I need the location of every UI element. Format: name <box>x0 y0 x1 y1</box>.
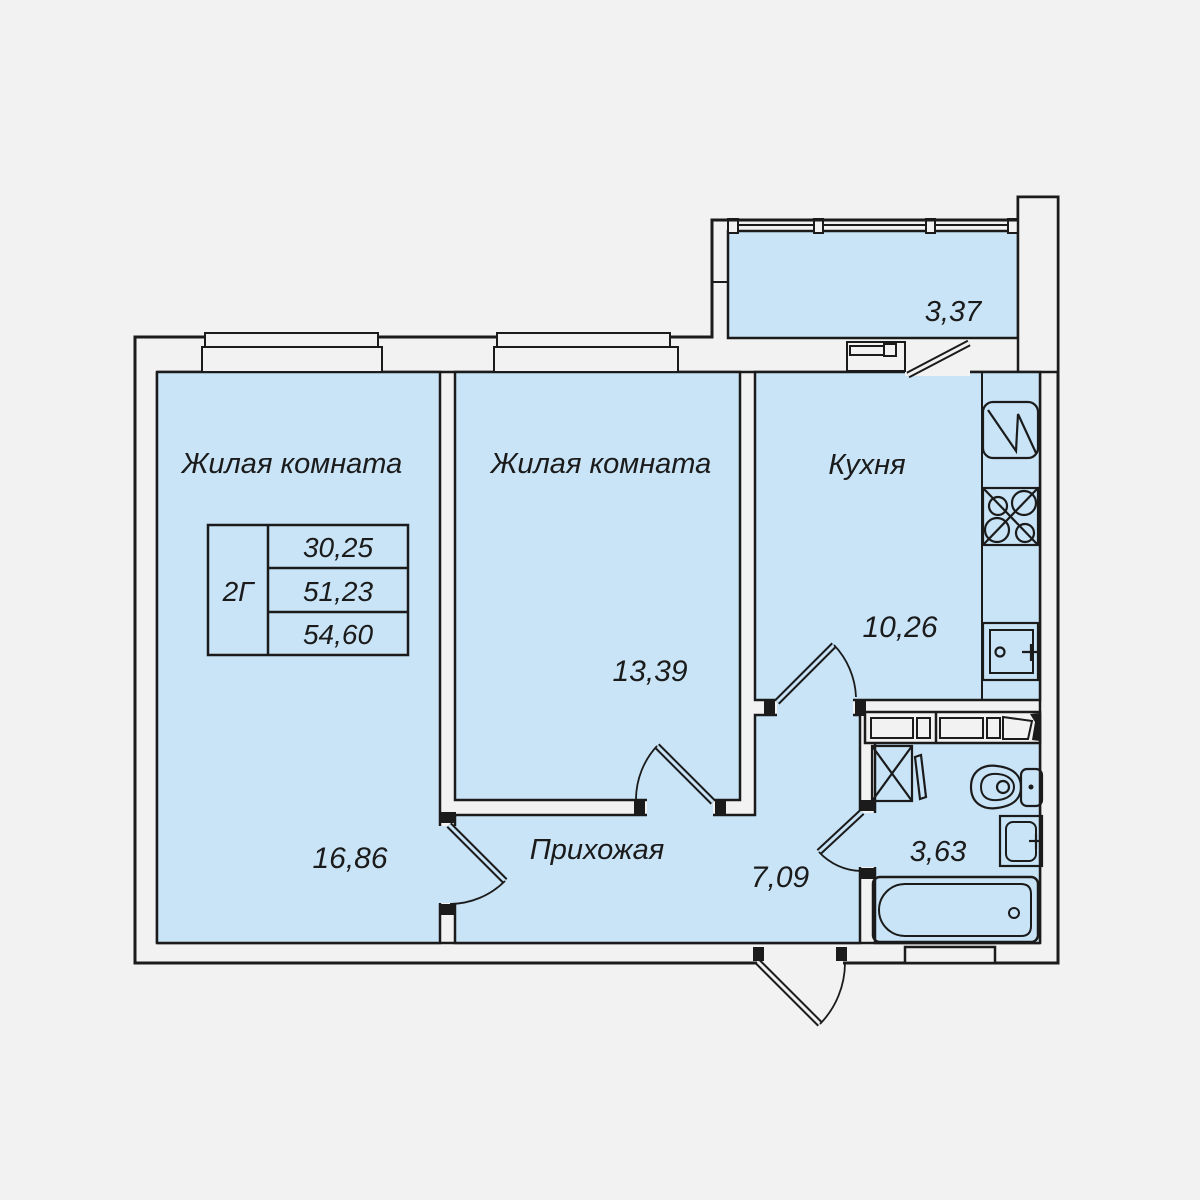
window-icon <box>494 347 678 372</box>
floor-plan-page: 3,37 <box>0 0 1200 1200</box>
room-kitchen <box>755 372 1040 700</box>
room-living-2 <box>455 372 740 800</box>
living-room-2-label: Жилая комната <box>489 448 712 480</box>
door-jamb <box>440 812 456 823</box>
hallway-label: Прихожая <box>530 834 665 866</box>
opening-entrance <box>757 958 843 968</box>
window-living-1 <box>202 333 382 372</box>
shelf-icon <box>865 712 1040 743</box>
unit-type: 2Г <box>222 576 256 607</box>
balcony: 3,37 <box>712 219 1018 338</box>
door-jamb <box>836 947 847 961</box>
door-jamb <box>860 868 876 879</box>
opening-living1-hallway <box>436 826 459 903</box>
living-room-1-label: Жилая комната <box>180 448 403 480</box>
living-room-1-area: 16,86 <box>312 842 387 875</box>
window-icon <box>497 333 670 347</box>
floor-plan: 3,37 <box>0 0 1200 1200</box>
balcony-area: 3,37 <box>925 296 983 328</box>
door-jamb <box>764 700 775 716</box>
info-value-3: 54,60 <box>303 619 373 650</box>
opening-living2-hallway <box>647 796 713 819</box>
wall-column <box>1018 197 1058 372</box>
opening-kitchen-hallway <box>777 696 853 719</box>
door-jamb <box>440 904 456 915</box>
living-room-2-area: 13,39 <box>612 655 687 688</box>
window-icon <box>205 333 378 347</box>
door-jamb <box>715 800 726 816</box>
door-jamb <box>634 800 645 816</box>
info-value-2: 51,23 <box>303 576 373 607</box>
window-living-2 <box>494 333 678 372</box>
window-icon <box>202 347 382 372</box>
hallway-area: 7,09 <box>751 861 810 894</box>
info-value-1: 30,25 <box>303 532 373 563</box>
balcony-window-vent <box>884 344 896 356</box>
opening-hallway-bathroom <box>856 813 879 867</box>
bathroom-area: 3,63 <box>910 836 966 868</box>
kitchen-area: 10,26 <box>862 611 937 644</box>
door-jamb <box>753 947 764 961</box>
kitchen-label: Кухня <box>828 449 905 481</box>
vent-shaft <box>905 947 995 963</box>
